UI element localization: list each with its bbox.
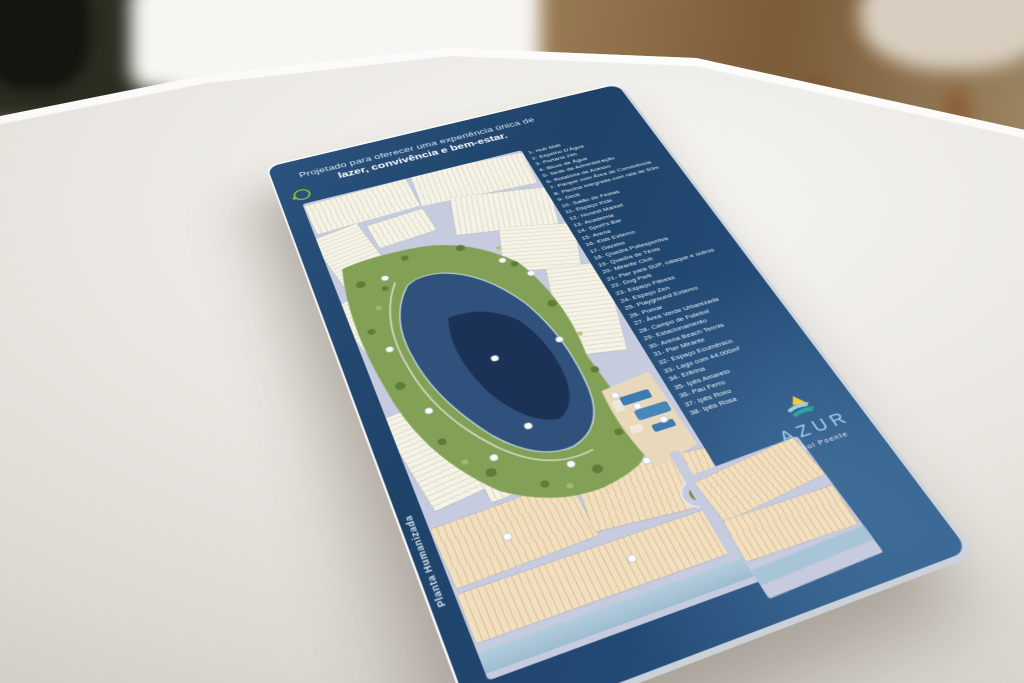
photo-of-masterplan-board: Projetado para oferecer uma experiência … — [0, 0, 1024, 683]
person-shadow-blur — [0, 0, 90, 90]
green-ring-icon — [292, 188, 313, 202]
